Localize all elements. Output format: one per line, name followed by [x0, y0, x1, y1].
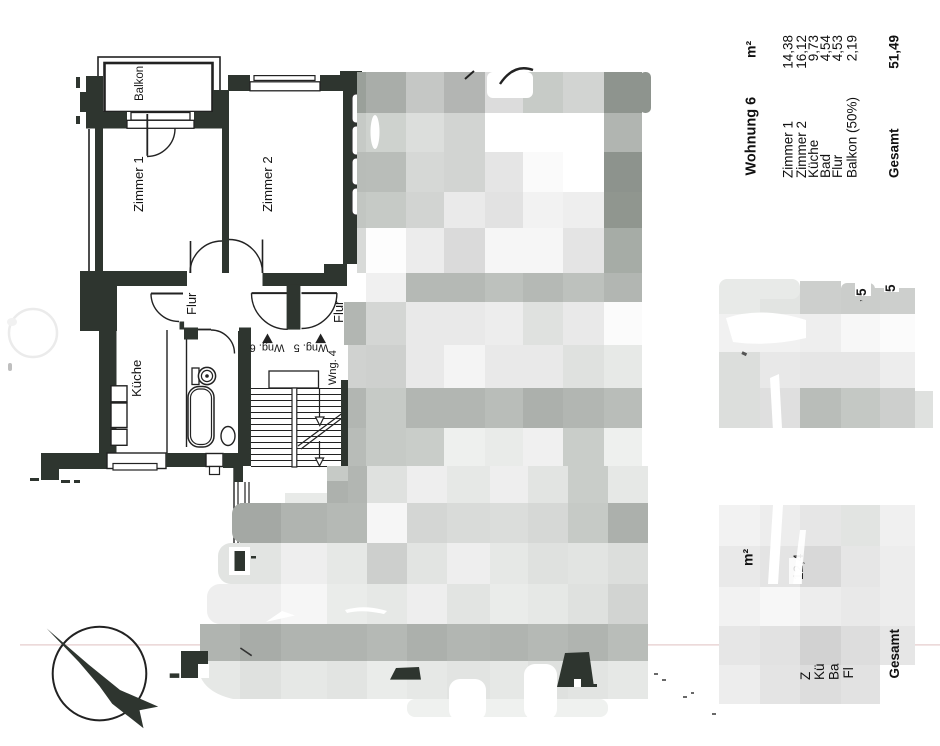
svg-text:51,49: 51,49	[887, 35, 902, 69]
svg-text:Zimmer 2: Zimmer 2	[260, 156, 275, 212]
svg-text:2,19: 2,19	[845, 35, 860, 61]
svg-text:Ba: Ba	[827, 663, 842, 680]
svg-text:Balkon (50%): Balkon (50%)	[845, 97, 860, 178]
svg-text:Flur: Flur	[830, 154, 845, 178]
svg-text:Wng. 4: Wng. 4	[327, 350, 339, 385]
svg-text:5: 5	[854, 288, 869, 296]
svg-text:,: ,	[853, 299, 863, 302]
svg-text:Wng. 5: Wng. 5	[294, 342, 329, 354]
svg-text:Küche: Küche	[129, 360, 144, 397]
svg-text:Wohnung 6: Wohnung 6	[744, 97, 760, 176]
svg-text:Flur: Flur	[331, 300, 346, 323]
svg-text:Kü: Kü	[812, 663, 827, 680]
svg-text:Flur: Flur	[184, 292, 199, 315]
svg-text:m²: m²	[743, 41, 759, 58]
svg-text:Zimmer 1: Zimmer 1	[131, 156, 146, 212]
svg-text:Gesamt: Gesamt	[887, 128, 902, 178]
svg-text:Balkon: Balkon	[134, 66, 146, 101]
svg-text:Z: Z	[798, 672, 813, 680]
svg-text:Gesamt: Gesamt	[887, 628, 902, 678]
svg-text:Wng. 6: Wng. 6	[250, 342, 285, 354]
svg-text:4,53: 4,53	[830, 35, 845, 61]
svg-text:m²: m²	[740, 549, 756, 566]
svg-text:5: 5	[883, 284, 898, 292]
svg-text:Fl: Fl	[841, 667, 856, 678]
